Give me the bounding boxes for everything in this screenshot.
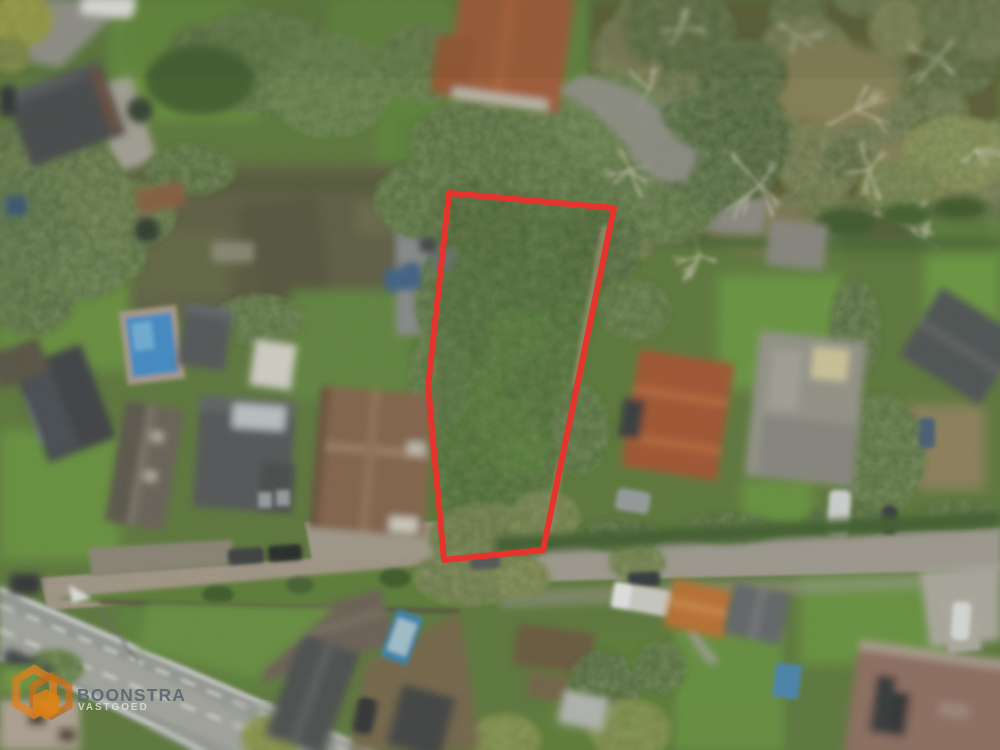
svg-text:VASTGOED: VASTGOED bbox=[78, 702, 149, 713]
